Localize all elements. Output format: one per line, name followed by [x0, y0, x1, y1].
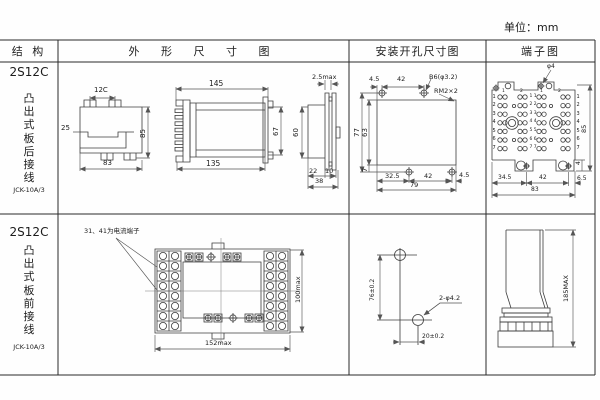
terminal-top-number-1: 1 [502, 90, 505, 95]
unit-label: 单位：mm [504, 22, 558, 34]
dim-63: 63 [362, 128, 370, 137]
dim-42-terminal: 42 [539, 175, 547, 182]
outline-side-view [175, 97, 273, 163]
dim-67: 67 [273, 127, 281, 136]
dim-34-5: 34.5 [498, 175, 511, 182]
current-terminal-note: 31、41为电流端子 [84, 228, 140, 235]
mount-type-row2: 凸 出 式 板 前 接 线 [0, 244, 58, 336]
terminal-top-number-4: 2 [558, 90, 561, 95]
dim-20: 20±0.2 [422, 334, 444, 341]
dim-76: 76±0.2 [370, 279, 377, 301]
dim-100max: 100max [295, 276, 302, 303]
dim-32-5: 32.5 [385, 173, 399, 180]
hole-spec-label: B6(φ3.2) [429, 74, 457, 81]
dim-83-front: 83 [103, 160, 112, 168]
header-install: 安装开孔尺寸图 [349, 40, 486, 62]
header-outline: 外 形 尺 寸 图 [58, 40, 349, 62]
dim-22: 22 [309, 168, 317, 175]
dim-60: 60 [293, 128, 301, 137]
dim-12c: 12C [94, 87, 108, 95]
front-wiring-centerlines [145, 238, 300, 344]
terminal-top-number-2: 2 [520, 90, 523, 95]
spec-sheet: 单位：mm 结 构 外 形 尺 寸 图 安装开孔尺寸图 端子图 2S12C 凸 … [0, 0, 600, 400]
mount-type-row1: 凸 出 式 板 后 接 线 [0, 92, 58, 184]
install-diagram-row1 [377, 88, 457, 177]
dim-152max: 152max [205, 340, 232, 347]
terminal-side-comb [508, 322, 548, 331]
model-label-row2: 2S12C [0, 224, 58, 240]
dim-135: 135 [206, 160, 220, 168]
terminal-top-number-3: 1 [540, 90, 543, 95]
dim-38: 38 [315, 178, 323, 185]
thread-spec-label: RM2×2 [434, 88, 458, 95]
dim-6-5: 6.5 [577, 176, 587, 183]
dim-42-top: 42 [397, 76, 405, 83]
type-code-row2: JCK-10A/3 [0, 342, 58, 352]
model-label-row1: 2S12C [0, 64, 58, 80]
dim-2-5max: 2.5max [312, 74, 337, 81]
header-structure: 结 构 [0, 40, 58, 62]
dim-85-terminal: 85 [581, 125, 588, 133]
dim-4-terminal: 4 [576, 161, 583, 165]
dim-83-terminal: 83 [531, 187, 539, 194]
dim-45-bottom: 4.5 [459, 172, 469, 179]
dim-phi4: φ4 [547, 64, 555, 71]
outline-end-dims [301, 80, 339, 189]
dim-2-phi42: 2-φ4.2 [439, 295, 460, 302]
dim-145: 145 [209, 80, 223, 88]
terminal-row-numbers-center: 1 1 2 2 3 3 4 4 5 5 6 6 7 7 [530, 93, 537, 153]
install-dims-row1 [360, 79, 462, 192]
outline-front-view [80, 100, 142, 160]
dim-45-top: 4.5 [369, 76, 379, 83]
dim-79: 79 [410, 182, 418, 189]
dim-25: 25 [61, 125, 70, 133]
header-terminal: 端子图 [486, 40, 595, 62]
dim-185max: 185MAX [563, 275, 570, 302]
install-diagram-row2 [377, 248, 432, 345]
type-code-row1: JCK-10A/3 [0, 185, 58, 195]
dim-42-bottom: 42 [424, 173, 432, 180]
dim-10: 10 [325, 168, 333, 175]
terminal-side-view-row2 [498, 230, 553, 347]
outline-end-view [308, 93, 340, 170]
terminal-row-numbers-right: 1 2 3 4 5 6 7 [577, 93, 580, 153]
terminal-dims-row2 [545, 230, 576, 347]
dim-85-front: 85 [140, 129, 148, 138]
outline-side-dims [176, 87, 283, 171]
terminal-row-numbers-left: 1 2 3 4 5 6 7 [493, 93, 496, 153]
table-grid [0, 40, 595, 375]
dim-7: 7 [362, 168, 369, 172]
